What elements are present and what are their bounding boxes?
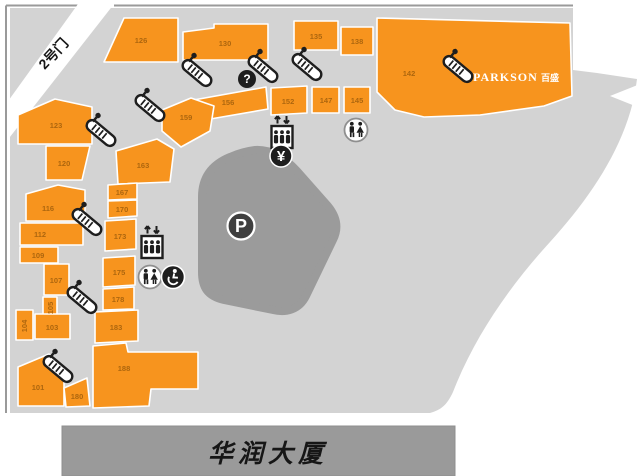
mall-floor-map: 2号门 126 130 135 138 142 145 147 152 156 … xyxy=(0,0,643,476)
store-label: 126 xyxy=(135,36,148,45)
store-label: 145 xyxy=(351,96,364,105)
store-label: 120 xyxy=(58,159,71,168)
store-label: 183 xyxy=(110,323,123,332)
info-icon: ? xyxy=(238,70,256,88)
store-label: 188 xyxy=(118,364,131,373)
store-label: 175 xyxy=(113,268,126,277)
store-label: 138 xyxy=(351,37,364,46)
store-label: 156 xyxy=(222,98,235,107)
restroom-icon xyxy=(345,119,368,142)
store-label: 178 xyxy=(112,295,125,304)
building-label: 华润大厦 xyxy=(208,439,328,468)
store-label: 116 xyxy=(42,204,54,213)
store-label: 142 xyxy=(403,69,416,78)
restroom-icon xyxy=(139,266,162,289)
svg-text:P: P xyxy=(235,216,247,236)
store-label: 180 xyxy=(71,392,84,401)
store-label: 152 xyxy=(282,97,295,106)
parkson-logo: PARKSON xyxy=(473,70,538,84)
store-unit-112 xyxy=(20,223,83,245)
store-label: 104 xyxy=(20,319,29,332)
store-label: 163 xyxy=(137,161,150,170)
atm-icon: ¥ xyxy=(270,145,292,167)
store-label: 170 xyxy=(116,205,129,214)
floor-map-canvas: 2号门 126 130 135 138 142 145 147 152 156 … xyxy=(0,0,643,476)
svg-text:?: ? xyxy=(243,72,250,86)
store-label: 135 xyxy=(310,32,323,41)
store-label: 173 xyxy=(114,232,127,241)
store-label: 147 xyxy=(320,96,333,105)
wheelchair-icon xyxy=(162,266,185,289)
store-label: 167 xyxy=(116,188,129,197)
store-label: 112 xyxy=(34,230,46,239)
store-label: 109 xyxy=(32,251,45,260)
store-label: 159 xyxy=(180,113,193,122)
parking-icon: P xyxy=(228,213,255,240)
parkson-logo-cn: 百盛 xyxy=(541,72,559,83)
store-label: 101 xyxy=(32,383,45,392)
store-label: 123 xyxy=(50,121,63,130)
store-unit-142 xyxy=(377,18,572,117)
store-label: 107 xyxy=(50,276,63,285)
store-label: 105 xyxy=(46,302,55,315)
svg-text:¥: ¥ xyxy=(277,148,286,165)
store-label: 103 xyxy=(46,323,59,332)
store-label: 130 xyxy=(219,39,232,48)
